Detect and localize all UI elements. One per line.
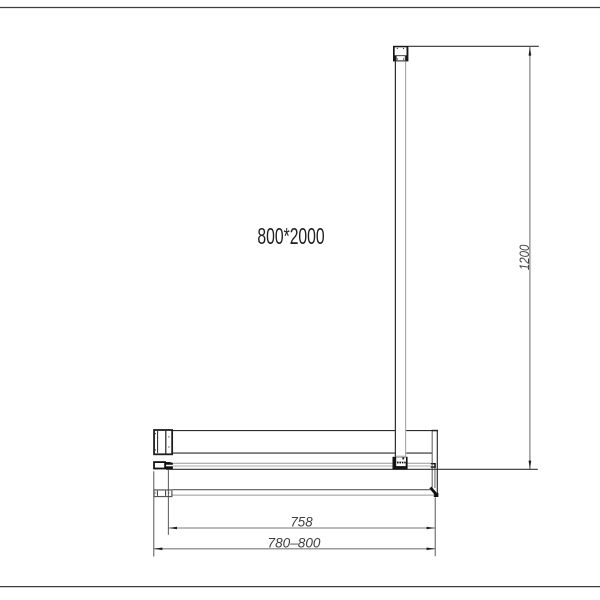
svg-text:800*2000: 800*2000 xyxy=(257,224,324,250)
svg-text:780–800: 780–800 xyxy=(268,535,321,550)
svg-text:758: 758 xyxy=(290,514,313,529)
svg-text:1200: 1200 xyxy=(516,244,532,270)
